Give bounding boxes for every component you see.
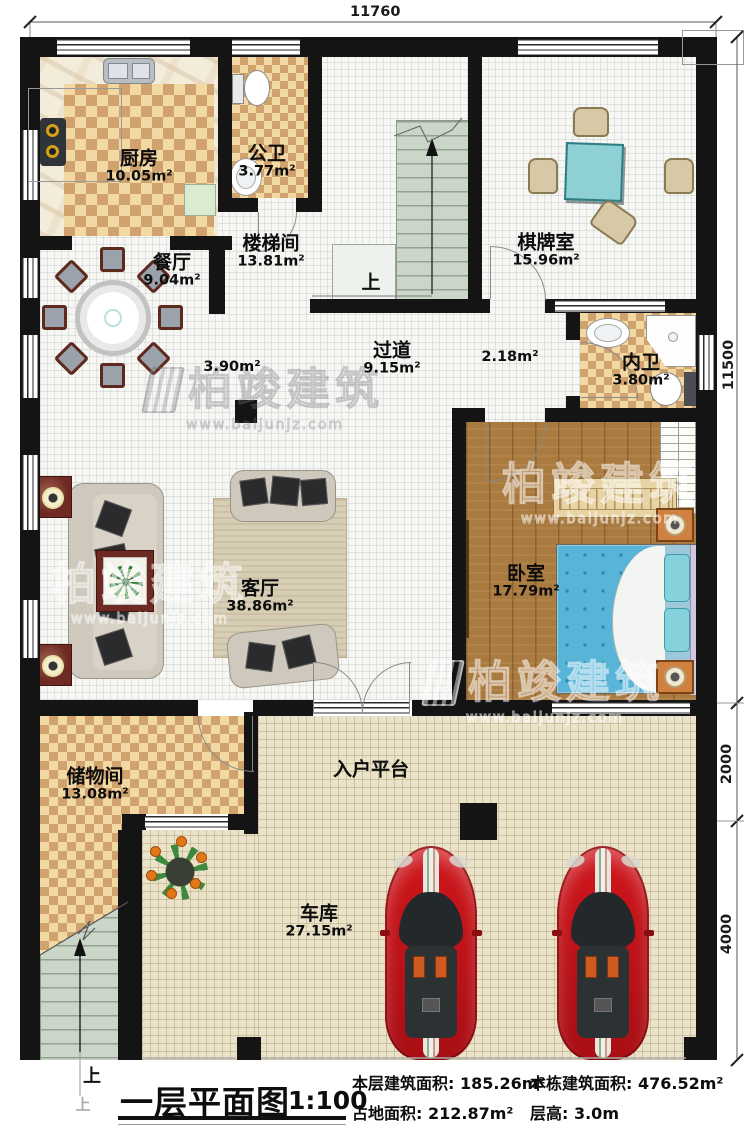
nightstand [656, 660, 694, 694]
kitchen-counter-board [184, 184, 216, 216]
chess-chair [664, 158, 694, 194]
window [22, 335, 38, 398]
wall-post [237, 1037, 261, 1060]
floor-plan-canvas: 柏竣建筑 www.baijunjz.com 柏竣建筑 www.baijunjz.… [0, 0, 750, 1134]
engine-detail [422, 998, 440, 1012]
sofa-cushion [300, 478, 328, 506]
orange-fruit [146, 870, 157, 881]
room-label-hallway: 过道9.15m² [363, 341, 420, 378]
car-mirror [644, 930, 654, 936]
sofa-cushion [282, 634, 317, 669]
room-label-bedroom: 卧室17.79m² [492, 564, 559, 601]
dining-table-center [104, 309, 122, 327]
pillow [664, 608, 690, 652]
wall-dining-stair [209, 250, 225, 314]
wall-bath-bottom [218, 198, 258, 212]
dining-chair [42, 305, 67, 330]
coffee-table [96, 550, 154, 612]
stat-building-area: 本栋建筑面积: 476.52m² [530, 1070, 723, 1094]
room-label-garage: 车库27.15m² [285, 904, 352, 941]
ensuite-sink-basin [594, 324, 622, 342]
dimension-right-middle: 2000 [719, 744, 735, 784]
stat-floor-area: 本层建筑面积: 185.26m² [352, 1070, 545, 1094]
dimension-right-lower: 4000 [719, 914, 735, 954]
sofa-cushion [239, 477, 268, 506]
plant-center [122, 578, 130, 586]
wall-bedroom-left [452, 408, 466, 710]
car-mirror [552, 930, 562, 936]
car [557, 846, 649, 1060]
wall-bedroom-top [545, 408, 716, 422]
engine-detail [607, 956, 619, 978]
room-label-entry-platform: 入户平台 [333, 760, 409, 781]
room-label-stairwell: 楼梯间13.81m² [237, 234, 304, 271]
dimension-right-upper: 11500 [721, 340, 737, 390]
window [698, 335, 714, 390]
stat-floor-height: 层高: 3.0m [530, 1100, 619, 1124]
chess-table [564, 142, 624, 202]
dimension-top: 11760 [350, 4, 400, 20]
car-mirror [472, 930, 482, 936]
room-label-dining: 餐厅9.04m² [143, 253, 200, 290]
room-label-storage: 储物间13.08m² [61, 767, 128, 804]
orange-fruit [176, 836, 187, 847]
car-engine-bay [405, 946, 457, 1038]
lamp-icon [42, 655, 64, 677]
window [22, 258, 38, 298]
window [232, 39, 300, 55]
sofa-top [230, 470, 336, 522]
wall-kitchen-bottom [40, 236, 72, 250]
dining-table [75, 280, 151, 356]
stair-up-label-ghost: 上 [75, 1094, 90, 1115]
sink-basin [108, 63, 128, 79]
lamp-icon [664, 514, 686, 536]
wall-ensuite-left [566, 313, 580, 340]
nightstand [656, 508, 694, 542]
wall-post [684, 1037, 717, 1060]
room-label-living: 客厅38.86m² [226, 579, 293, 616]
car [385, 846, 477, 1060]
toilet-bowl [244, 70, 270, 106]
car-engine-bay [577, 946, 629, 1038]
dining-chair [100, 363, 125, 388]
engine-detail [594, 998, 612, 1012]
wall-kitchen-bath [218, 57, 232, 205]
stat-land-area: 占地面积: 212.87m² [352, 1100, 513, 1124]
wall-bath-stair [308, 57, 322, 212]
window [57, 39, 190, 55]
kitchen-sink [103, 58, 155, 84]
car-mirror [380, 930, 390, 936]
pillow [664, 554, 690, 602]
wall-storage-bottom [228, 814, 258, 830]
lamp-icon [664, 666, 686, 688]
window-storage [145, 816, 228, 828]
wall-garage-stairs [118, 830, 142, 1060]
dining-chair [158, 305, 183, 330]
room-label-chess-room: 棋牌室15.96m² [512, 233, 579, 270]
chess-chair [573, 107, 609, 137]
wall-below-stairs [310, 299, 482, 313]
orange-fruit [150, 846, 161, 857]
wall-mid-bottom [20, 700, 198, 716]
dresser-items [559, 488, 673, 510]
window [518, 39, 658, 55]
window [22, 455, 38, 530]
wall-mid-bottom [412, 700, 452, 716]
wall-chess-bottom [482, 299, 490, 313]
room-label-kitchen: 厨房10.05m² [105, 149, 172, 186]
room-label-ensuite: 内卫3.80m² [612, 353, 669, 390]
hallway-sub-area-right: 2.18m² [481, 349, 538, 365]
wall-kitchen-bottom [170, 236, 232, 250]
chess-chair [528, 158, 558, 194]
stair-up-label-exterior: 上 [83, 1062, 101, 1088]
wall-stair-chess [468, 57, 482, 313]
engine-detail [435, 956, 447, 978]
orange-fruit [190, 878, 201, 889]
orange-fruit [196, 852, 207, 863]
column-garage [460, 803, 497, 840]
ensuite-toilet-tank [684, 372, 696, 406]
sofa-cushion [270, 476, 301, 507]
title-underline [118, 1116, 346, 1120]
window-bedroom [552, 702, 690, 714]
lamp-icon [42, 487, 64, 509]
engine-detail [585, 956, 597, 978]
stair-flight [396, 120, 470, 302]
window [22, 600, 38, 658]
wall-storage-bottom [122, 814, 146, 830]
window-internal [555, 300, 665, 312]
dining-chair [100, 247, 125, 272]
title-underline-thin [118, 1124, 346, 1125]
hallway-sub-area-left: 3.90m² [203, 359, 260, 375]
sofa-cushion [245, 642, 275, 672]
column-hallway [235, 400, 257, 423]
stair-up-label: 上 [361, 268, 380, 295]
sink-basin [132, 63, 150, 79]
room-label-public-bath: 公卫3.77m² [238, 144, 295, 181]
dimension-offset-box [682, 30, 744, 65]
orange-fruit [166, 888, 177, 899]
shower-drain [668, 332, 678, 342]
wall-exterior-right [696, 37, 717, 1060]
engine-detail [413, 956, 425, 978]
wall-mid-bottom [253, 700, 313, 716]
toilet-icon [232, 74, 244, 104]
